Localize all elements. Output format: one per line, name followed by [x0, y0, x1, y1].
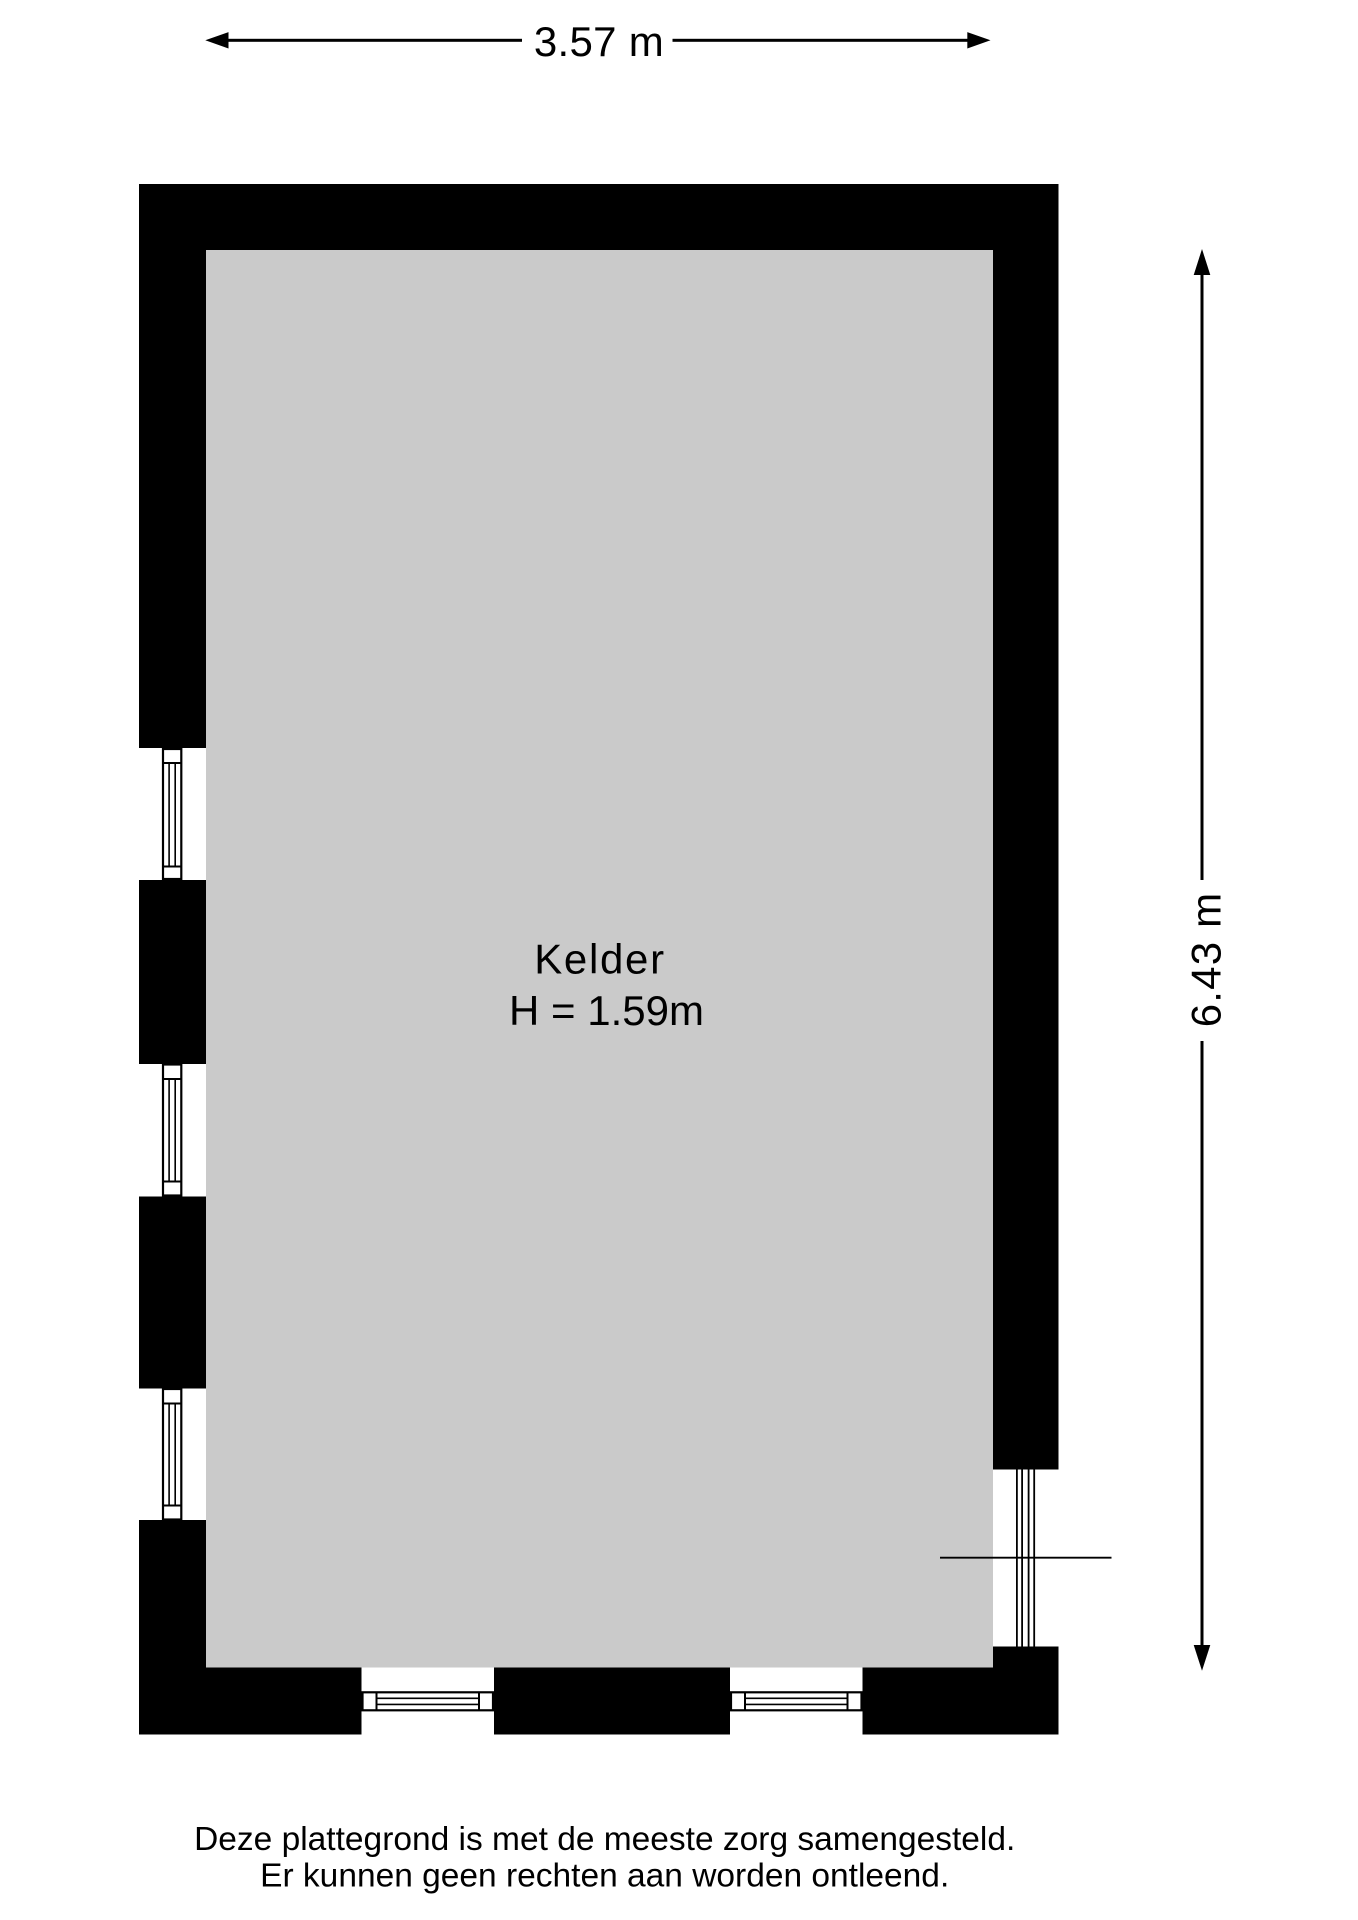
svg-text:Deze plattegrond is met de mee: Deze plattegrond is met de meeste zorg s… [194, 1821, 1015, 1858]
svg-text:H = 1.59m: H = 1.59m [509, 987, 704, 1034]
svg-text:6.43 m: 6.43 m [1183, 892, 1230, 1028]
svg-text:Er kunnen geen rechten aan wor: Er kunnen geen rechten aan worden ontlee… [260, 1858, 949, 1895]
svg-text:Kelder: Kelder [534, 936, 666, 983]
svg-text:3.57 m: 3.57 m [534, 18, 664, 65]
